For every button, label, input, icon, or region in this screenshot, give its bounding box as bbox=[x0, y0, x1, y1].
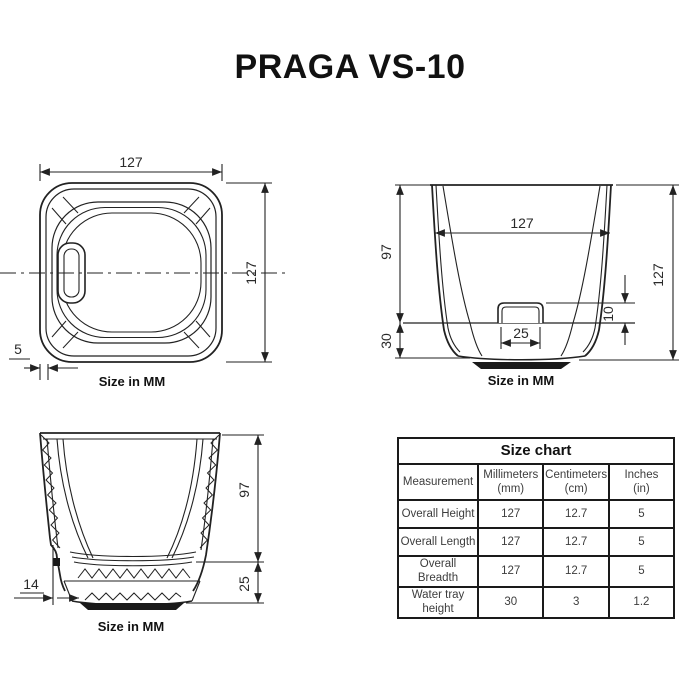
wall-hatch bbox=[41, 435, 219, 600]
row-mm: 127 bbox=[478, 500, 543, 528]
col-header-cm: Centimeters (cm) bbox=[543, 464, 608, 500]
col-header-mm-line2: (mm) bbox=[479, 482, 542, 496]
table-row: Water tray height 30 3 1.2 bbox=[398, 587, 674, 618]
section-view-caption: Size in MM bbox=[98, 619, 164, 634]
dim-upper-height-label: 97 bbox=[380, 244, 394, 260]
row-in: 1.2 bbox=[609, 587, 674, 618]
row-label: Overall Breadth bbox=[398, 556, 478, 587]
dim-window-height-label: 10 bbox=[600, 306, 616, 322]
row-label: Overall Length bbox=[398, 528, 478, 556]
side-view-caption: Size in MM bbox=[488, 373, 554, 388]
row-cm: 12.7 bbox=[543, 528, 608, 556]
size-chart-title-row: Size chart bbox=[398, 438, 674, 464]
dim-inner-width-label: 127 bbox=[510, 215, 534, 231]
base-shadow bbox=[472, 362, 571, 369]
top-view: 127 127 5 Size in MM bbox=[0, 140, 300, 395]
technical-drawing-page: PRAGA VS-10 bbox=[0, 0, 700, 700]
size-chart-header-row: Measurement Millimeters (mm) Centimeters… bbox=[398, 464, 674, 500]
row-in: 5 bbox=[609, 500, 674, 528]
row-mm: 30 bbox=[478, 587, 543, 618]
col-header-in: Inches (in) bbox=[609, 464, 674, 500]
dim-window-height bbox=[546, 275, 635, 345]
table-row: Overall Breadth 127 12.7 5 bbox=[398, 556, 674, 587]
section-view: 97 25 14 Size in MM bbox=[0, 410, 300, 660]
col-header-cm-line1: Centimeters bbox=[544, 468, 607, 482]
dim-overall-height-label: 127 bbox=[650, 263, 666, 287]
top-view-drawing: 127 127 5 Size in MM bbox=[0, 140, 300, 395]
dim-height-label: 127 bbox=[243, 261, 259, 285]
row-mm: 127 bbox=[478, 556, 543, 587]
col-header-in-line2: (in) bbox=[610, 482, 673, 496]
inner-pot-lines bbox=[57, 439, 203, 605]
base-shadow bbox=[80, 603, 184, 610]
size-chart-title: Size chart bbox=[398, 438, 674, 464]
dim-width-label: 127 bbox=[119, 154, 143, 170]
dim-wall-label: 5 bbox=[14, 341, 22, 357]
dim-tray-height-label: 30 bbox=[380, 333, 394, 349]
row-label: Overall Height bbox=[398, 500, 478, 528]
shell-outline bbox=[40, 433, 220, 591]
side-view: 127 97 30 127 10 bbox=[380, 140, 700, 395]
row-cm: 12.7 bbox=[543, 556, 608, 587]
col-header-mm: Millimeters (mm) bbox=[478, 464, 543, 500]
dim-inner-height-label: 97 bbox=[236, 482, 252, 498]
section-view-drawing: 97 25 14 Size in MM bbox=[0, 410, 300, 660]
dim-inner-height bbox=[186, 435, 264, 603]
dim-step bbox=[14, 545, 79, 605]
table-row: Overall Length 127 12.7 5 bbox=[398, 528, 674, 556]
row-in: 5 bbox=[609, 528, 674, 556]
col-header-mm-line1: Millimeters bbox=[479, 468, 542, 482]
dim-step-label: 14 bbox=[23, 576, 39, 592]
water-level-window bbox=[498, 303, 543, 323]
col-header-in-line1: Inches bbox=[610, 468, 673, 482]
row-label: Water tray height bbox=[398, 587, 478, 618]
row-cm: 12.7 bbox=[543, 500, 608, 528]
row-cm: 3 bbox=[543, 587, 608, 618]
dim-base-height-label: 25 bbox=[236, 576, 252, 592]
step-notch bbox=[53, 558, 60, 566]
dim-upper-height bbox=[395, 185, 470, 358]
size-chart-table: Size chart Measurement Millimeters (mm) … bbox=[397, 437, 675, 619]
dim-window-width-label: 25 bbox=[513, 325, 529, 341]
table-row: Overall Height 127 12.7 5 bbox=[398, 500, 674, 528]
top-view-caption: Size in MM bbox=[99, 374, 165, 389]
col-header-cm-line2: (cm) bbox=[544, 482, 607, 496]
page-title: PRAGA VS-10 bbox=[0, 48, 700, 87]
side-view-drawing: 127 97 30 127 10 bbox=[380, 140, 700, 395]
col-header-measurement: Measurement bbox=[398, 464, 478, 500]
row-mm: 127 bbox=[478, 528, 543, 556]
row-in: 5 bbox=[609, 556, 674, 587]
